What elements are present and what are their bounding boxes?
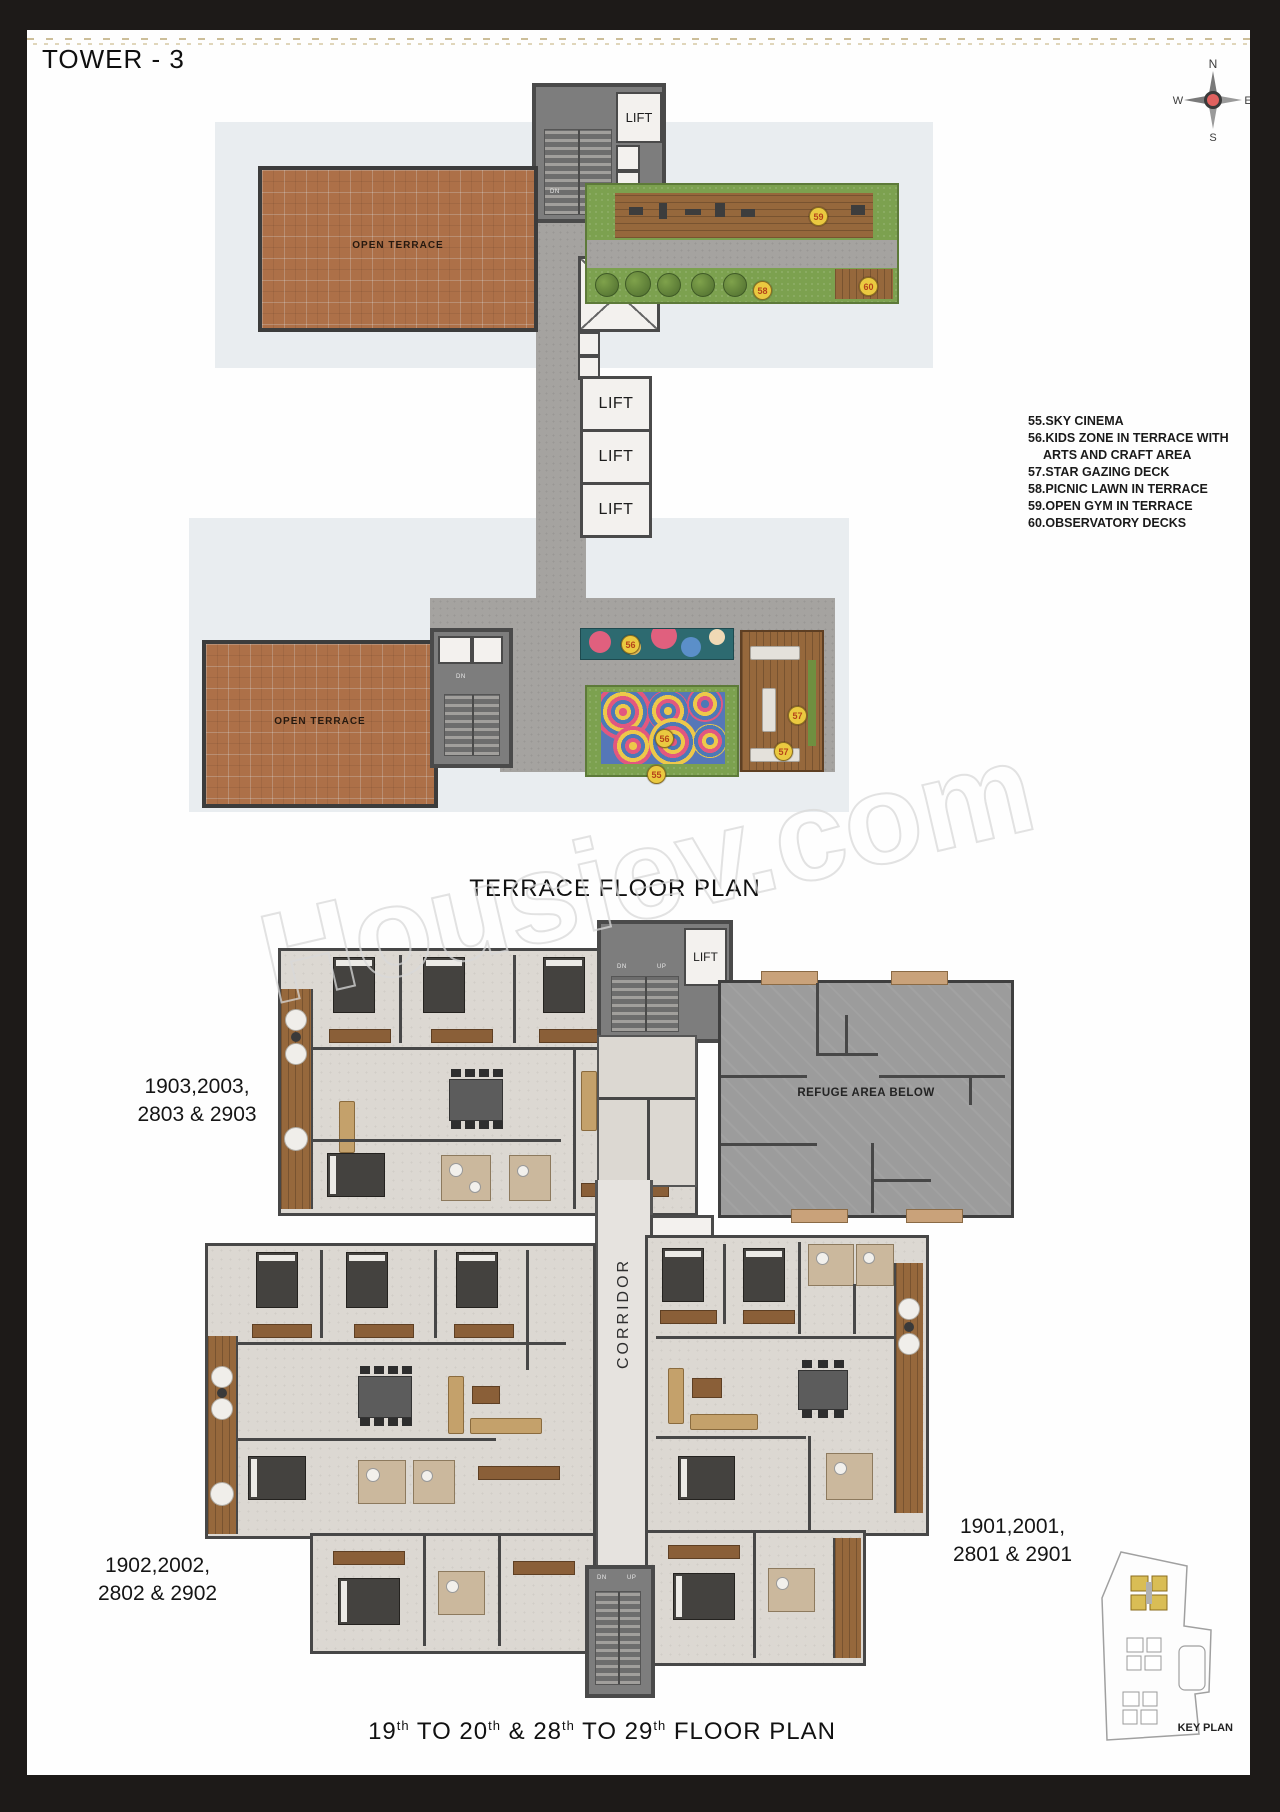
chair-icon <box>465 1121 475 1129</box>
kids-zone-badge: 56 <box>655 729 674 748</box>
decorative-border-strip <box>27 38 1250 45</box>
wall-divider <box>320 1250 323 1338</box>
open-gym-deck <box>615 193 873 238</box>
compass-north-label: N <box>1209 57 1218 71</box>
tv-unit-icon <box>472 1386 500 1404</box>
round-chair-icon <box>211 1398 233 1420</box>
refuge-area: REFUGE AREA BELOW <box>718 980 1014 1218</box>
mural-art <box>709 629 725 645</box>
wall-divider <box>498 1536 501 1646</box>
wall-divider <box>656 1336 896 1339</box>
wardrobe-icon <box>660 1310 717 1324</box>
lift-label: LIFT <box>693 950 718 964</box>
unit-numbers-line: 1903,2003, <box>87 1073 307 1101</box>
wall-divider <box>423 1536 426 1646</box>
round-chair-icon <box>285 1043 307 1065</box>
bath-fixture-icon <box>469 1181 481 1193</box>
stairs-down-label: DN <box>456 674 466 680</box>
sofa-icon <box>581 1071 597 1131</box>
stairs-up-label: UP <box>657 964 666 970</box>
bathroom <box>509 1155 551 1201</box>
legend-item: 59.OPEN GYM IN TERRACE <box>1028 498 1248 515</box>
bed-icon <box>327 1153 385 1197</box>
tree-icon <box>691 273 715 297</box>
round-chair-icon <box>211 1366 233 1388</box>
bed-icon <box>338 1578 400 1625</box>
bed-icon <box>256 1252 298 1308</box>
chair-icon <box>818 1360 828 1368</box>
legend-item: 57.STAR GAZING DECK <box>1028 464 1248 481</box>
bathroom <box>438 1571 485 1615</box>
compass-south-label: S <box>1209 132 1216 144</box>
legend-item: 56.KIDS ZONE IN TERRACE WITH <box>1028 430 1248 447</box>
bench-icon <box>750 646 800 660</box>
bathroom <box>413 1460 455 1504</box>
chair-icon <box>493 1121 503 1129</box>
stairs-down-label: DN <box>597 1575 607 1581</box>
key-plan: KEY PLAN <box>1083 1542 1233 1752</box>
bed-icon <box>456 1252 498 1308</box>
legend-item: 55.SKY CINEMA <box>1028 413 1248 430</box>
terrace-plan-title: TERRACE FLOOR PLAN <box>215 875 1015 903</box>
refuge-area-label: REFUGE AREA BELOW <box>721 1087 1011 1099</box>
wall-divider <box>871 1143 874 1213</box>
coffee-table-icon <box>291 1032 301 1042</box>
bathroom <box>826 1453 873 1500</box>
key-plan-label: KEY PLAN <box>1153 1722 1233 1734</box>
play-mat-ring <box>687 692 723 722</box>
bath-fixture-icon <box>446 1580 459 1593</box>
wall-divider <box>513 955 516 1043</box>
sky-cinema-badge: 55 <box>647 765 666 784</box>
key-plan-map <box>1083 1542 1223 1742</box>
round-chair-icon <box>284 1127 308 1151</box>
wall-divider <box>526 1250 529 1370</box>
chair-icon <box>493 1069 503 1077</box>
bathroom <box>441 1155 491 1201</box>
round-chair-icon <box>285 1009 307 1031</box>
wall-divider <box>753 1533 756 1658</box>
balcony-nub <box>791 1209 848 1223</box>
floor-plan-title: 19th TO 20th & 28th TO 29th FLOOR PLAN <box>102 1718 1102 1746</box>
bathroom <box>358 1460 406 1504</box>
compass-west-label: W <box>1173 95 1184 107</box>
mural-art <box>651 628 677 649</box>
wall-divider <box>808 1436 811 1530</box>
sofa-icon <box>690 1414 758 1430</box>
star-gazing-badge: 57 <box>788 706 807 725</box>
title-part: TO 20 <box>410 1718 489 1745</box>
amenities-legend: 55.SKY CINEMA 56.KIDS ZONE IN TERRACE WI… <box>1028 413 1248 532</box>
lift-room: LIFT <box>684 928 727 986</box>
bath-fixture-icon <box>776 1577 789 1590</box>
unit-numbers-line: 1901,2001, <box>900 1513 1125 1541</box>
title-superscript: th <box>562 1718 575 1733</box>
staircase-block: DN UP <box>585 1565 655 1698</box>
legend-item: 58.PICNIC LAWN IN TERRACE <box>1028 481 1248 498</box>
gym-equipment-icon <box>629 207 643 215</box>
chair-icon <box>360 1418 370 1426</box>
balcony-nub <box>906 1209 963 1223</box>
terrace-path <box>587 240 897 268</box>
staircase-block: DN <box>430 628 513 768</box>
unit-numbers-line: 1902,2002, <box>45 1552 270 1580</box>
unit-numbers-line: 2803 & 2903 <box>87 1101 307 1129</box>
tree-icon <box>625 271 651 297</box>
chair-icon <box>834 1410 844 1418</box>
balcony-nub <box>761 971 818 985</box>
bathroom <box>768 1568 815 1612</box>
title-superscript: th <box>488 1718 501 1733</box>
chair-icon <box>479 1069 489 1077</box>
round-chair-icon <box>898 1333 920 1355</box>
wall-divider <box>845 1015 848 1055</box>
utility-block <box>597 1035 697 1187</box>
wardrobe-icon <box>431 1029 493 1043</box>
legend-item: 60.OBSERVATORY DECKS <box>1028 515 1248 532</box>
lift-label: LIFT <box>626 110 653 125</box>
wardrobe-icon <box>252 1324 312 1338</box>
bath-fixture-icon <box>816 1252 829 1265</box>
bed-icon <box>673 1573 735 1620</box>
wardrobe-icon <box>454 1324 514 1338</box>
kids-zone-mural: 56 <box>580 628 734 660</box>
unit-label-1903: 1903,2003, 2803 & 2903 <box>87 1073 307 1130</box>
round-chair-icon <box>898 1298 920 1320</box>
coffee-table-icon <box>217 1388 227 1398</box>
title-superscript: th <box>653 1718 666 1733</box>
wardrobe-icon <box>333 1551 405 1565</box>
apartment-1901 <box>645 1235 929 1536</box>
kids-play-mat <box>601 692 725 764</box>
chair-icon <box>834 1360 844 1368</box>
sofa-icon <box>339 1101 355 1153</box>
bed-icon <box>743 1248 785 1302</box>
open-terrace-label: OPEN TERRACE <box>206 716 434 727</box>
wall-divider <box>573 1047 576 1209</box>
lift-label: LIFT <box>599 501 634 519</box>
stairs-down-label: DN <box>617 964 627 970</box>
shaft-room <box>578 332 600 356</box>
wardrobe-icon <box>743 1310 795 1324</box>
tree-icon <box>595 273 619 297</box>
wall-divider <box>871 1179 931 1182</box>
wall-divider <box>721 1075 807 1078</box>
compass-icon: N E S W <box>1168 55 1250 145</box>
lift-room: LIFT <box>583 485 649 535</box>
chair-icon <box>388 1418 398 1426</box>
star-gazing-deck: 57 57 <box>740 630 824 772</box>
bath-fixture-icon <box>863 1252 875 1264</box>
round-chair-icon <box>210 1482 234 1506</box>
chair-icon <box>402 1366 412 1374</box>
chair-icon <box>402 1418 412 1426</box>
apartment-1902 <box>205 1243 596 1539</box>
shaft-room <box>472 636 503 664</box>
title-part: & 28 <box>501 1718 562 1745</box>
tree-icon <box>723 273 747 297</box>
bathroom <box>808 1244 854 1286</box>
title-part: 19 <box>368 1718 397 1745</box>
wall-divider <box>236 1342 566 1345</box>
staircase-block: LIFT DN UP <box>597 920 733 1043</box>
shaft-room <box>616 145 640 171</box>
chair-icon <box>465 1069 475 1077</box>
bed-icon <box>333 957 375 1013</box>
sky-cinema-lawn: 56 55 <box>585 685 739 777</box>
mural-art <box>681 637 701 657</box>
planter-strip <box>808 660 816 746</box>
coffee-table-icon <box>904 1322 914 1332</box>
wall-divider <box>721 1143 817 1146</box>
bed-icon <box>248 1456 306 1500</box>
dining-table-icon <box>798 1370 848 1410</box>
unit-numbers-line: 2802 & 2902 <box>45 1580 270 1608</box>
wall-divider <box>236 1438 496 1441</box>
gym-terrace: 59 58 60 <box>585 183 899 304</box>
chair-icon <box>374 1366 384 1374</box>
star-gazing-badge: 57 <box>774 742 793 761</box>
bed-icon <box>423 957 465 1013</box>
gym-equipment-icon <box>659 203 667 219</box>
unit-label-1902: 1902,2002, 2802 & 2902 <box>45 1552 270 1609</box>
wall-divider <box>311 1139 561 1142</box>
title-superscript: th <box>397 1718 410 1733</box>
floor-plan-sheet: { "page": { "tower_title": "TOWER - 3", … <box>0 0 1280 1812</box>
wardrobe-icon <box>354 1324 414 1338</box>
chair-icon <box>479 1121 489 1129</box>
stairs-icon <box>611 976 679 1032</box>
sofa-icon <box>470 1418 542 1434</box>
chair-icon <box>802 1360 812 1368</box>
wardrobe-icon <box>539 1029 601 1043</box>
bed-icon <box>346 1252 388 1308</box>
gym-equipment-icon <box>715 203 725 217</box>
bathroom <box>856 1244 894 1286</box>
lift-room: LIFT <box>616 92 662 143</box>
apartment-1902-extension <box>310 1533 596 1654</box>
kitchen-counter-icon <box>478 1466 560 1480</box>
sofa-icon <box>448 1376 464 1434</box>
bed-icon <box>543 957 585 1013</box>
kids-zone-badge: 56 <box>621 635 640 654</box>
wall-divider <box>656 1436 806 1439</box>
observatory-decks-badge: 60 <box>859 277 878 296</box>
chair-icon <box>802 1410 812 1418</box>
sofa-icon <box>668 1368 684 1424</box>
wall-divider <box>647 1097 650 1185</box>
balcony-deck <box>833 1538 861 1658</box>
balcony-nub <box>891 971 948 985</box>
bed-icon <box>662 1248 704 1302</box>
wall-divider <box>816 983 819 1053</box>
gym-equipment-icon <box>685 209 701 215</box>
chair-icon <box>388 1366 398 1374</box>
tree-icon <box>657 273 681 297</box>
lift-room: LIFT <box>583 379 649 429</box>
chair-icon <box>818 1410 828 1418</box>
bath-fixture-icon <box>421 1470 433 1482</box>
bench-icon <box>762 688 776 732</box>
open-terrace-bottom: OPEN TERRACE <box>202 640 438 808</box>
bath-fixture-icon <box>517 1165 529 1177</box>
gym-equipment-icon <box>741 209 755 217</box>
terrace-lift-bank: LIFT LIFT LIFT <box>580 376 652 538</box>
compass-east-label: E <box>1244 95 1250 107</box>
wall-divider <box>853 1284 856 1334</box>
bath-fixture-icon <box>366 1468 380 1482</box>
stairs-down-label: DN <box>550 189 560 195</box>
picnic-lawn-badge: 58 <box>753 281 772 300</box>
open-gym-badge: 59 <box>809 207 828 226</box>
lift-label: LIFT <box>599 395 634 413</box>
wall-divider <box>434 1250 437 1338</box>
open-terrace-top: OPEN TERRACE <box>258 166 538 332</box>
lift-label: LIFT <box>599 448 634 466</box>
corridor-label: CORRIDOR <box>615 1228 633 1398</box>
dining-table-icon <box>358 1376 412 1418</box>
wardrobe-icon <box>513 1561 575 1575</box>
wall-divider <box>399 955 402 1043</box>
stairs-icon <box>595 1591 641 1685</box>
chair-icon <box>374 1418 384 1426</box>
wardrobe-icon <box>329 1029 391 1043</box>
sheet-page: TOWER - 3 N E S W 55.SKY CINEMA 56.KIDS … <box>27 30 1250 1775</box>
bath-fixture-icon <box>449 1163 463 1177</box>
chair-icon <box>451 1121 461 1129</box>
wall-divider <box>798 1242 801 1334</box>
stairs-icon <box>444 694 500 756</box>
dining-table-icon <box>449 1079 503 1121</box>
page-title: TOWER - 3 <box>42 44 185 75</box>
legend-item-continuation: ARTS AND CRAFT AREA <box>1028 447 1248 464</box>
wall-divider <box>879 1075 1005 1078</box>
play-mat-ring <box>613 726 653 764</box>
open-terrace-label: OPEN TERRACE <box>262 240 534 251</box>
apartment-1901-extension <box>645 1530 866 1666</box>
mural-art <box>589 631 611 653</box>
title-part: FLOOR PLAN <box>666 1718 836 1745</box>
title-part: TO 29 <box>575 1718 654 1745</box>
chair-icon <box>360 1366 370 1374</box>
wall-divider <box>723 1244 726 1324</box>
play-mat-ring <box>693 724 725 758</box>
stairs-up-label: UP <box>627 1575 636 1581</box>
chair-icon <box>451 1069 461 1077</box>
shaft-room <box>438 636 472 664</box>
bed-icon <box>678 1456 735 1500</box>
wardrobe-icon <box>668 1545 740 1559</box>
bath-fixture-icon <box>834 1462 847 1475</box>
lift-room: LIFT <box>583 432 649 482</box>
gym-equipment-icon <box>851 205 865 215</box>
tv-unit-icon <box>692 1378 722 1398</box>
